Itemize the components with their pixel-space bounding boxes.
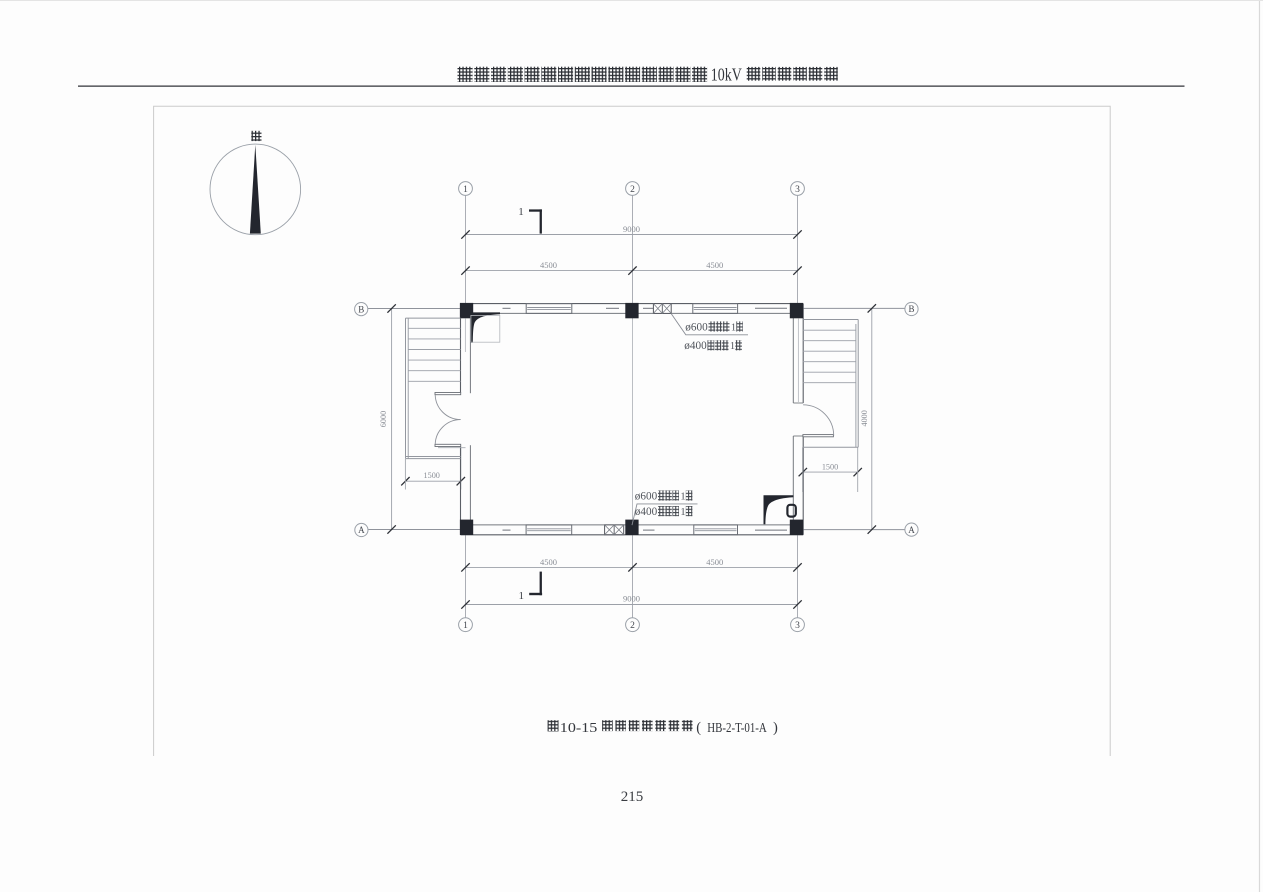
- svg-text:): ): [773, 720, 778, 736]
- svg-text:B: B: [908, 304, 914, 314]
- svg-text:1: 1: [463, 621, 468, 631]
- svg-text:9000: 9000: [623, 594, 640, 604]
- svg-text:2: 2: [630, 185, 635, 195]
- svg-text:(: (: [696, 720, 701, 736]
- svg-text:10kV: 10kV: [711, 64, 742, 84]
- svg-text:4000: 4000: [860, 410, 869, 426]
- svg-text:4500: 4500: [540, 557, 557, 567]
- svg-text:1: 1: [731, 322, 736, 333]
- svg-text:1: 1: [463, 185, 468, 195]
- svg-text:3: 3: [795, 621, 800, 631]
- svg-text:1: 1: [518, 206, 524, 218]
- svg-text:ø600: ø600: [685, 321, 708, 333]
- svg-text:1: 1: [680, 507, 685, 518]
- svg-text:1: 1: [730, 341, 735, 352]
- svg-text:ø600: ø600: [635, 490, 658, 502]
- svg-text:ø400: ø400: [635, 506, 658, 518]
- svg-text:6000: 6000: [379, 411, 388, 427]
- svg-text:ø400: ø400: [684, 340, 707, 352]
- svg-text:4500: 4500: [706, 260, 723, 270]
- svg-text:9000: 9000: [623, 224, 640, 234]
- svg-text:1: 1: [518, 590, 524, 602]
- svg-text:10-15: 10-15: [560, 721, 598, 736]
- svg-text:HB-2-T-01-A: HB-2-T-01-A: [707, 720, 767, 735]
- svg-text:2: 2: [630, 621, 635, 631]
- svg-text:A: A: [358, 525, 365, 535]
- svg-text:B: B: [358, 304, 364, 314]
- svg-text:215: 215: [621, 789, 644, 805]
- svg-text:1500: 1500: [822, 462, 838, 471]
- svg-text:A: A: [908, 525, 915, 535]
- svg-text:3: 3: [795, 185, 800, 195]
- svg-text:1500: 1500: [424, 471, 440, 480]
- svg-text:4500: 4500: [706, 557, 723, 567]
- svg-text:1: 1: [680, 491, 685, 502]
- svg-text:4500: 4500: [540, 260, 557, 270]
